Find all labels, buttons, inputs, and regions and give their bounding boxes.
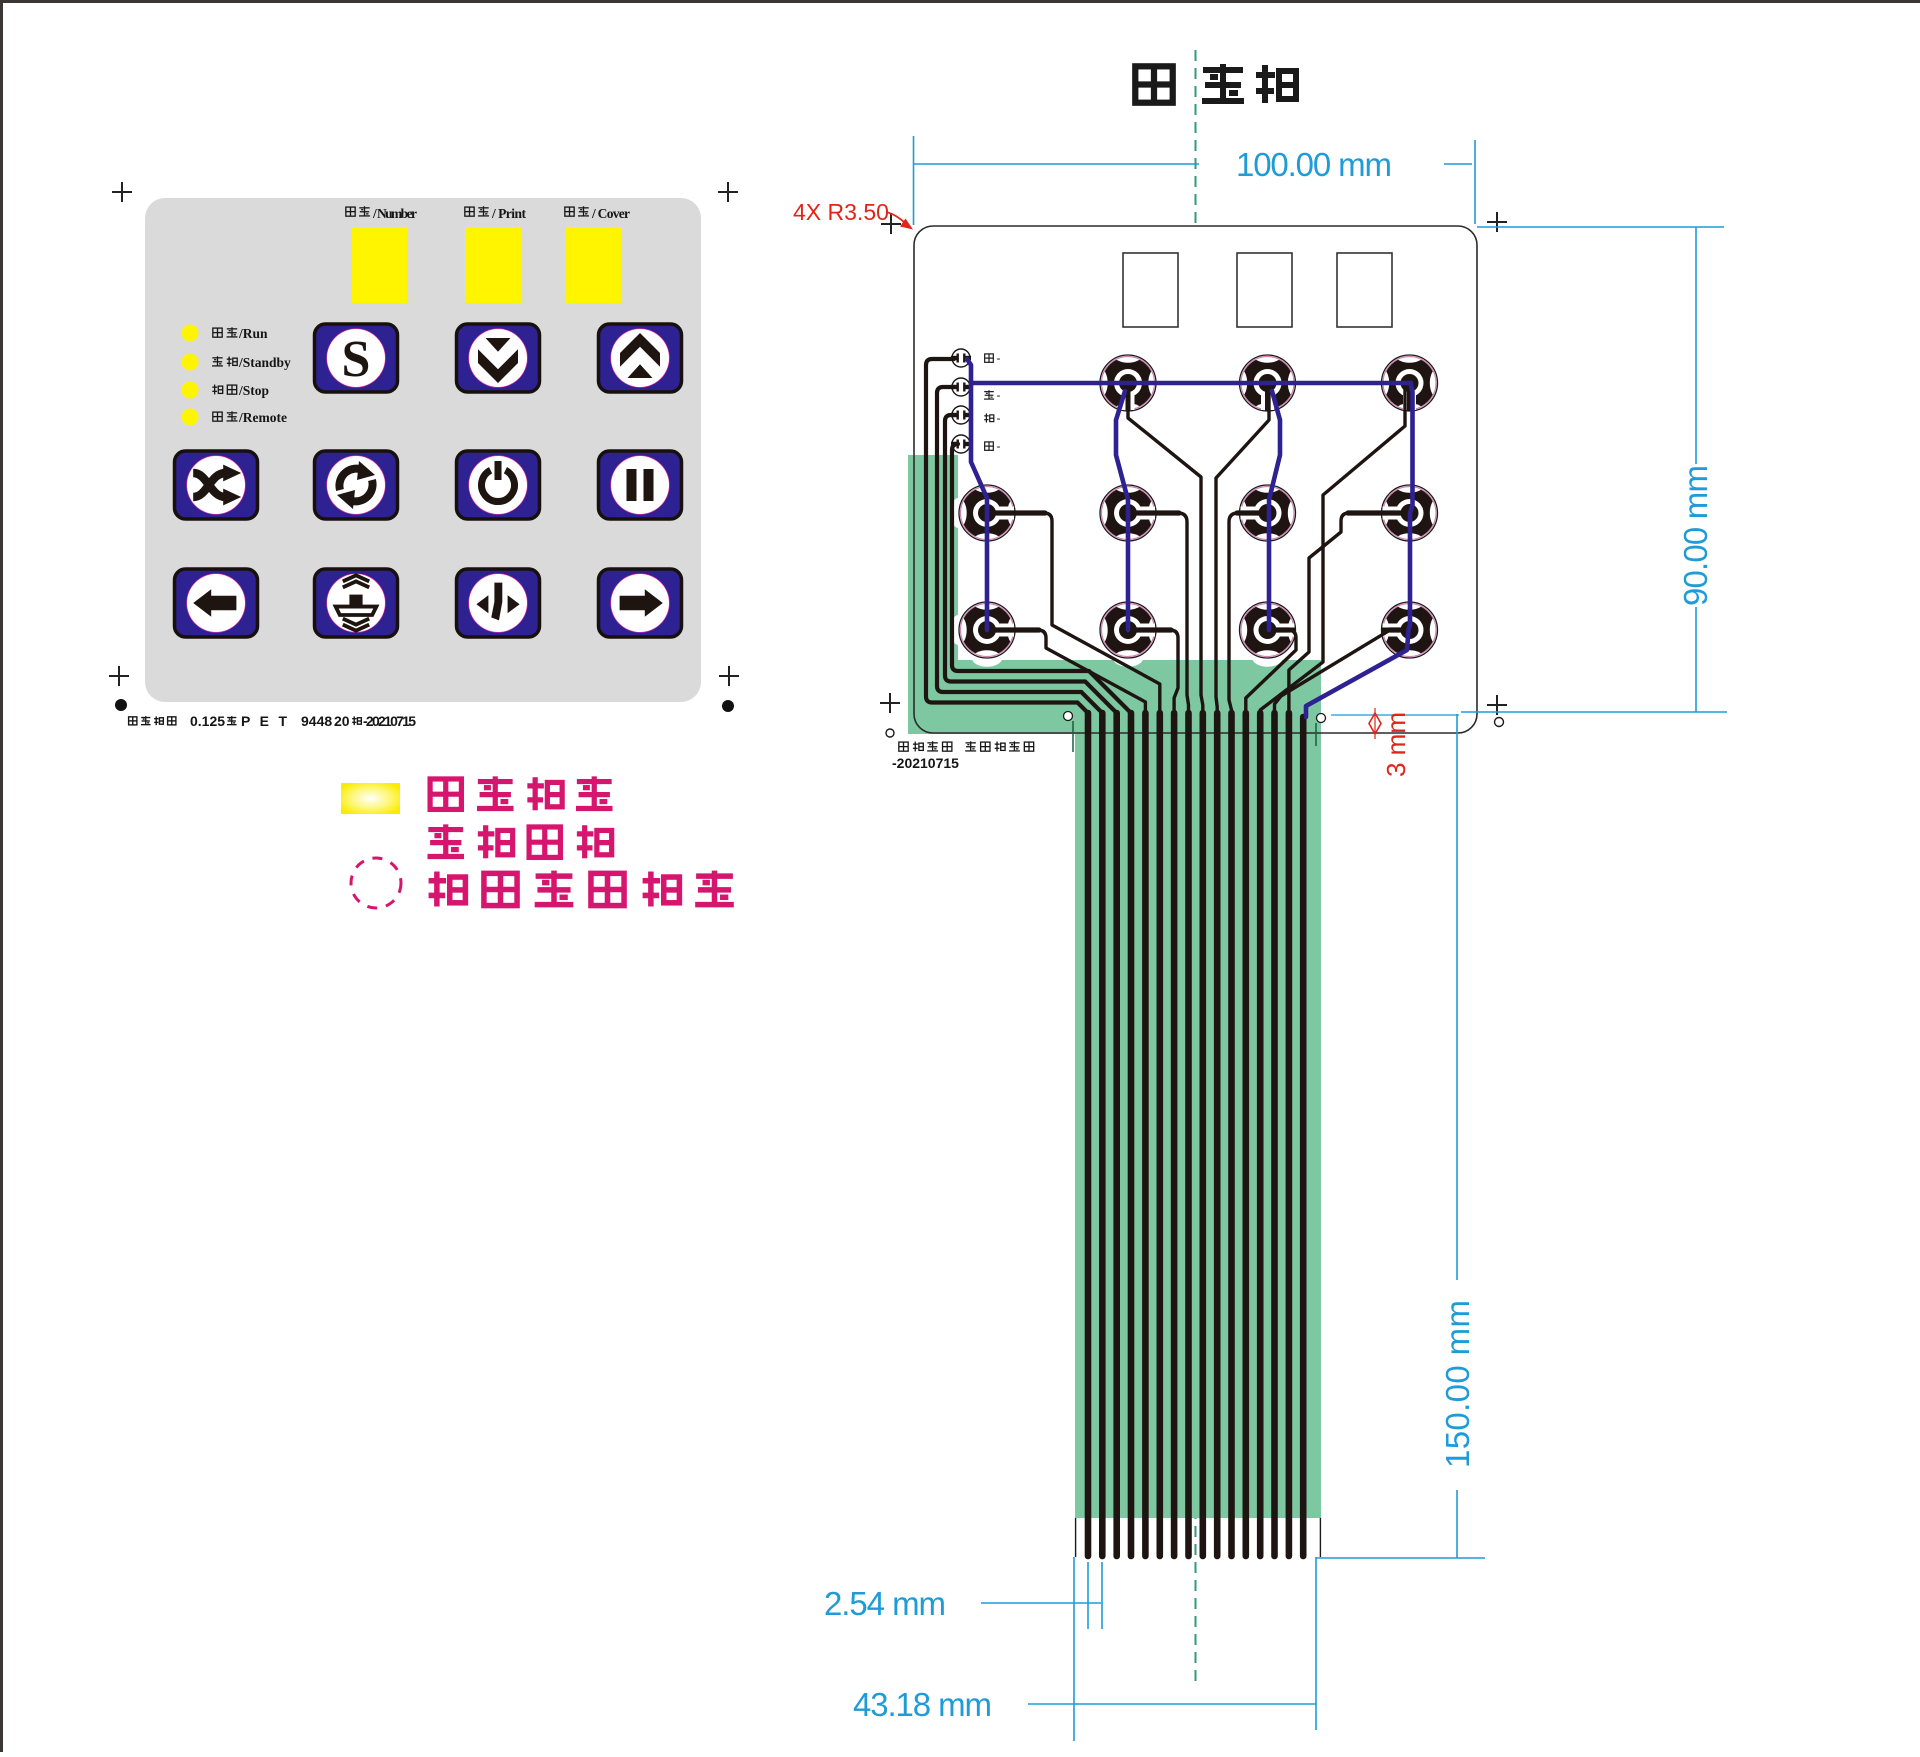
svg-text:S: S — [342, 331, 371, 388]
svg-text:-: - — [996, 411, 1000, 425]
svg-text:150.00 mm: 150.00 mm — [1439, 1300, 1476, 1468]
svg-text:9448: 9448 — [301, 713, 332, 729]
svg-text:90.00 mm: 90.00 mm — [1677, 465, 1714, 606]
svg-text:3 mm: 3 mm — [1381, 712, 1411, 777]
svg-text:/ Print: / Print — [491, 206, 527, 221]
svg-text:/Remote: /Remote — [238, 410, 287, 425]
svg-text:/ Cover: / Cover — [591, 206, 630, 221]
svg-text:-: - — [996, 439, 1000, 453]
svg-text:P E T: P E T — [241, 713, 287, 729]
svg-text:4X R3.50: 4X R3.50 — [793, 199, 889, 225]
svg-text:2.54 mm: 2.54 mm — [824, 1585, 946, 1622]
svg-text:20: 20 — [334, 713, 350, 729]
svg-text:-: - — [996, 351, 1000, 365]
svg-text:/ Number: / Number — [372, 206, 417, 221]
svg-text:100.00 mm: 100.00 mm — [1236, 146, 1392, 183]
svg-text:/Run: /Run — [238, 326, 268, 341]
svg-text:-: - — [996, 388, 1000, 402]
svg-text:/Stop: /Stop — [238, 383, 269, 398]
svg-text:-20210715: -20210715 — [363, 713, 416, 729]
svg-text:43.18 mm: 43.18 mm — [853, 1686, 992, 1723]
svg-text:/Standby: /Standby — [238, 355, 291, 370]
svg-text:0.125: 0.125 — [190, 713, 225, 729]
svg-text:-20210715: -20210715 — [892, 755, 959, 771]
